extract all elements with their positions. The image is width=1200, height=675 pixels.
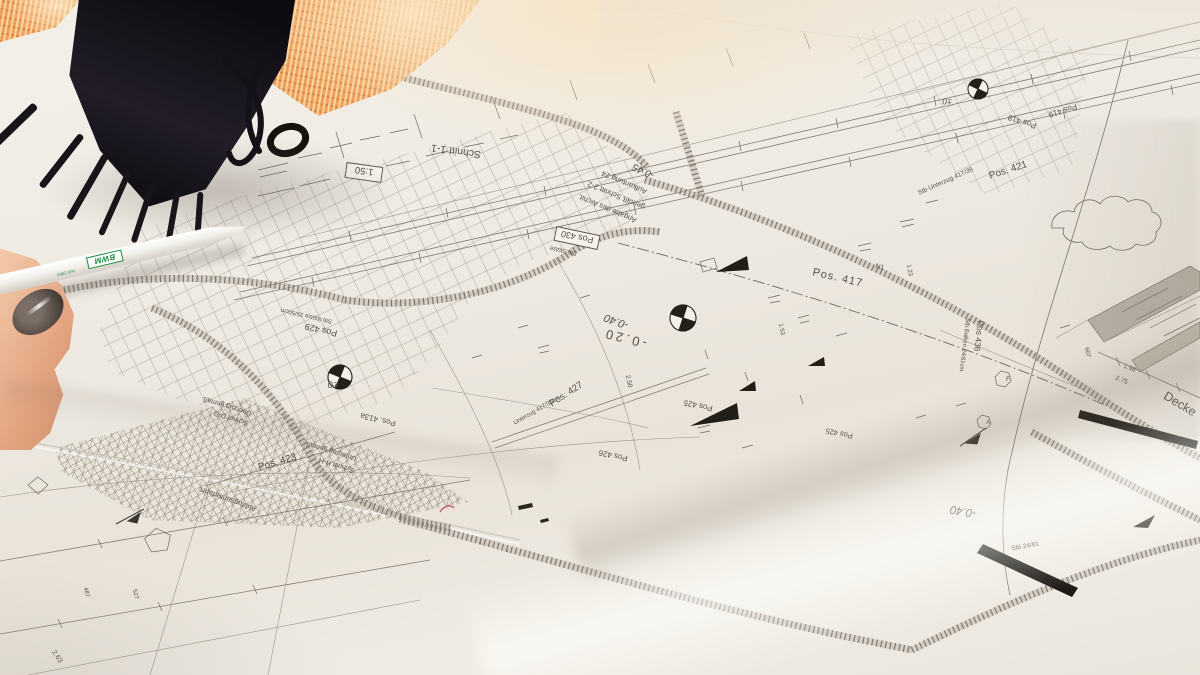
dim-607: 607: [1083, 347, 1091, 359]
dim-487: 487: [82, 587, 91, 599]
pos417-label: Pos. 417: [811, 266, 864, 289]
pen-brand-tagline: seit 1964: [57, 268, 76, 277]
pos427-sub: Unterzug 417/35cm: [513, 395, 561, 426]
dim-153: 1.53: [777, 323, 785, 336]
decke-label: Decke: [1161, 389, 1199, 419]
dim-263: 2.63: [50, 649, 63, 664]
scarf-fringe-loop: [215, 55, 290, 180]
dim-275: 2.75: [1114, 375, 1129, 386]
pos421-sub: Stb Unterzug 417/35: [917, 166, 975, 197]
pos425b-label: Pos 425: [825, 426, 854, 441]
pos425a-label: Pos 425: [682, 398, 713, 413]
hex-symbol-a: A: [986, 420, 990, 426]
hex-symbol-f: F: [1006, 376, 1010, 383]
dim-123: 1.23: [905, 264, 913, 277]
pos426-label: Pos 426: [597, 448, 628, 463]
dim-250: 2.50: [624, 374, 634, 388]
dim-527: 527: [131, 589, 140, 601]
photo-blueprint-scene: 1:50 Pos 430 Schnitt 1-1 Aufkantung 24 g…: [0, 0, 1200, 675]
pos436-sub: Stb.Balken 24/61cm: [958, 318, 971, 372]
level-zero-a: ±0: [327, 378, 339, 391]
top-right-room: [1056, 266, 1200, 372]
pos436-label: Pos 436: [972, 320, 986, 352]
pos413a-label: Pos. 413a: [359, 411, 397, 428]
red-mark-3: -0.40: [949, 503, 977, 519]
stb2461-label: Stb 24/61: [1011, 541, 1040, 553]
